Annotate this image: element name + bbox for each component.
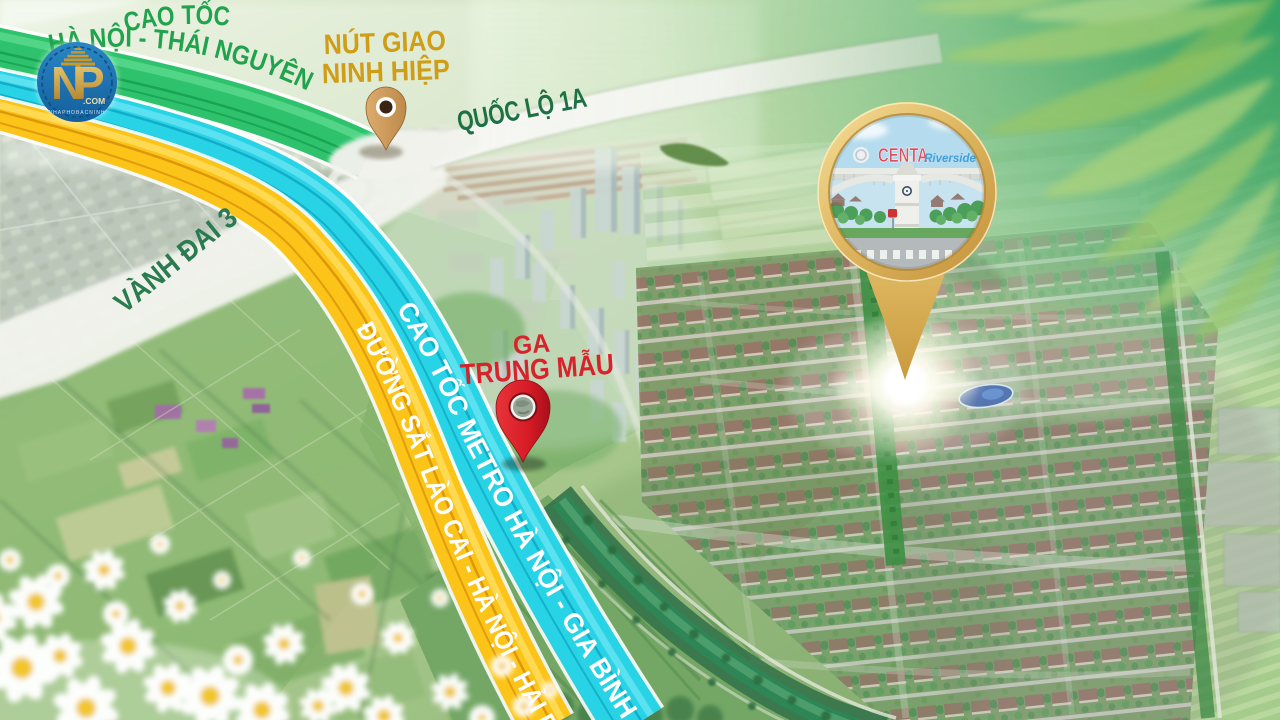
svg-text:NHAPHOBACNINH: NHAPHOBACNINH	[49, 110, 106, 116]
svg-text:Riverside: Riverside	[924, 153, 976, 165]
svg-text:NINH HIỆP: NINH HIỆP	[321, 54, 450, 89]
svg-text:.COM: .COM	[83, 96, 105, 106]
svg-text:CENTA: CENTA	[878, 145, 928, 167]
